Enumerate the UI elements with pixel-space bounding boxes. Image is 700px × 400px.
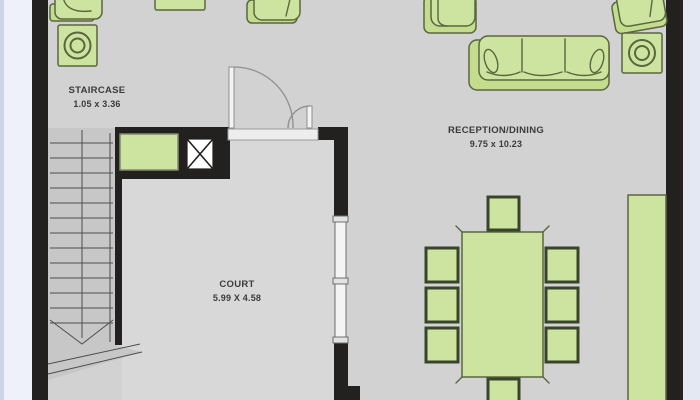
court-top-right-wall (318, 127, 348, 140)
room-dimensions: 9.75 x 10.23 (426, 138, 566, 150)
dining-chair-bottom (488, 379, 519, 400)
room-label-reception-dining: RECEPTION/DINING 9.75 x 10.23 (426, 125, 566, 150)
window-symbol (333, 216, 348, 343)
court-right-wall-step (334, 386, 360, 400)
floor-plan: STAIRCASE 1.05 x 3.36 RECEPTION/DINING 9… (0, 0, 700, 400)
washing-machine-symbol (58, 25, 97, 66)
room-label-court: COURT 5.99 X 4.58 (187, 279, 287, 304)
room-name: COURT (187, 279, 287, 292)
room-name: STAIRCASE (47, 85, 147, 98)
room-dimensions: 1.05 x 3.36 (47, 98, 147, 110)
armchair-top-symbol (247, 0, 300, 23)
room-name: RECEPTION/DINING (426, 125, 566, 138)
outside-left-edge (0, 0, 4, 400)
sideboard-symbol (628, 195, 666, 400)
room-dimensions: 5.99 X 4.58 (187, 292, 287, 304)
court-right-wall-upper (334, 140, 348, 218)
dining-table-symbol (456, 226, 549, 383)
armchair-left-symbol (424, 0, 476, 33)
dining-chair-left-1 (426, 248, 458, 282)
storage-cabinet (120, 134, 178, 170)
floor-plan-drawing (0, 0, 700, 400)
dining-chair-left-3 (426, 328, 458, 362)
court-left-wall (115, 179, 122, 345)
outside-left-band (0, 0, 32, 400)
shaft-duct-symbol (187, 139, 213, 169)
room-label-staircase: STAIRCASE 1.05 x 3.36 (47, 85, 147, 110)
dining-chair-right-1 (546, 248, 578, 282)
left-wall (32, 0, 48, 400)
court-right-wall-lower (334, 342, 348, 388)
dining-chair-top (488, 197, 519, 230)
sofa-symbol (469, 36, 609, 90)
dining-chair-left-2 (426, 288, 458, 322)
dining-chair-right-3 (546, 328, 578, 362)
small-side-table-symbol (155, 0, 205, 10)
right-wall (666, 0, 683, 400)
sink-unit-symbol (50, 0, 102, 21)
round-side-table-symbol (622, 33, 662, 73)
dining-chair-right-2 (546, 288, 578, 322)
